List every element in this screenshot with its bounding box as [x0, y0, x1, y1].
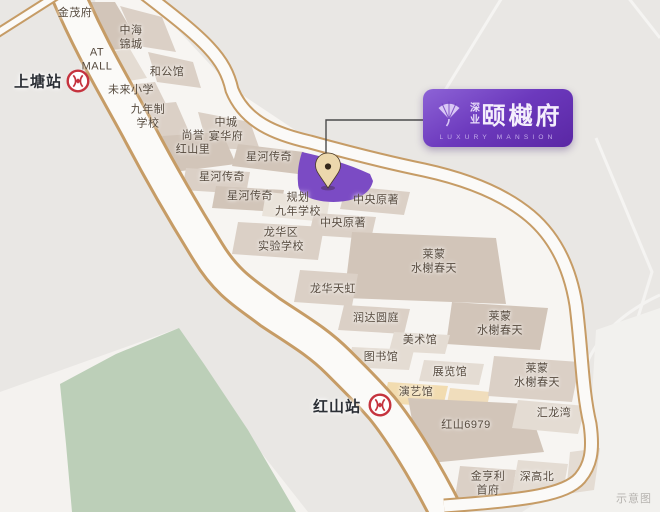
building-block [294, 270, 358, 306]
metro-station-label: 上塘站 [14, 71, 62, 92]
developer-name: 深业 [468, 102, 478, 126]
map-canvas [0, 0, 660, 512]
building-block [232, 222, 324, 260]
building-block [512, 400, 586, 434]
building-block [419, 360, 484, 385]
metro-station-label: 红山站 [313, 396, 361, 417]
building-block [488, 356, 580, 402]
metro-logo-icon [369, 394, 392, 417]
schematic-watermark: 示意图 [616, 490, 652, 506]
building-block [338, 305, 410, 334]
project-banner: 深业 颐樾府 LUXURY MANSION [423, 89, 573, 147]
building-block [446, 302, 548, 350]
building-block [344, 232, 506, 304]
project-name: 颐樾府 [482, 96, 563, 131]
location-map: 深业 颐樾府 LUXURY MANSION 示意图 金茂府中海 锦城AT MAL… [0, 0, 660, 512]
ginkgo-fan-icon [434, 98, 464, 128]
project-subtitle: LUXURY MANSION [439, 134, 556, 141]
metro-logo-icon [67, 70, 90, 93]
